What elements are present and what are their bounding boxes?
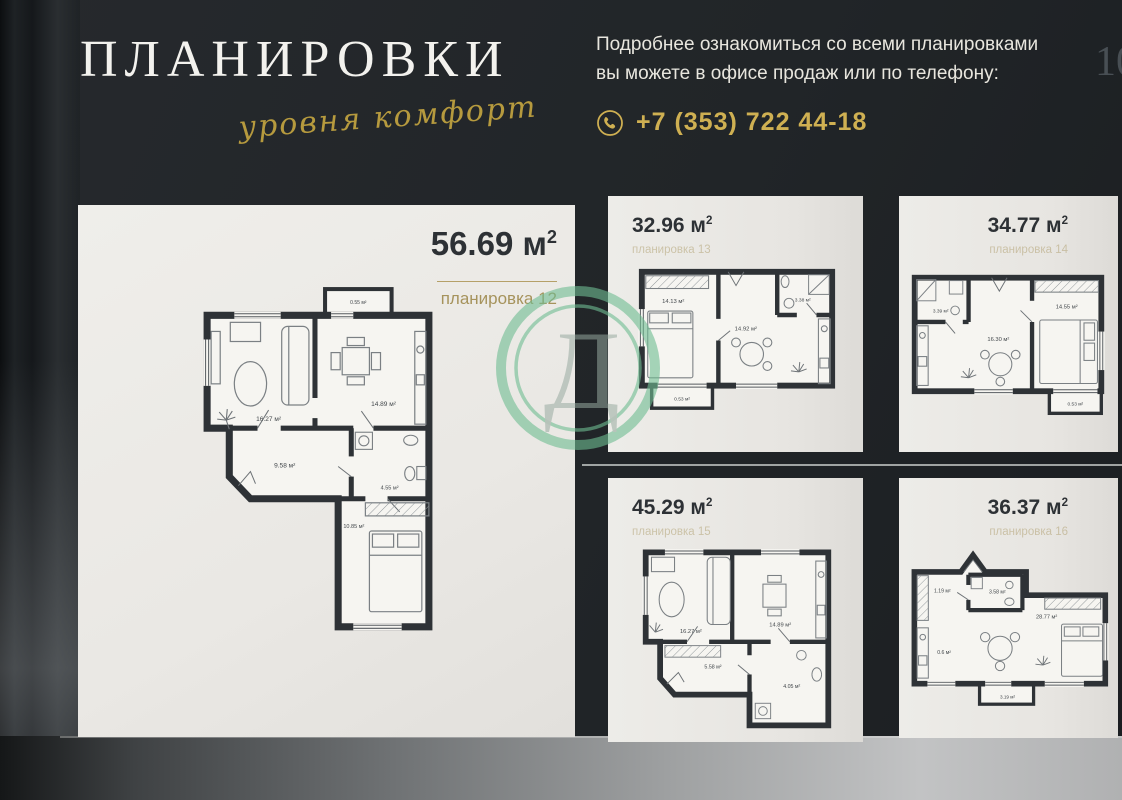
hall-wardrobe	[665, 646, 721, 658]
plan-card-14: 34.77 м2 планировка 14	[899, 196, 1118, 452]
plan-area-title: 32.96 м2	[632, 214, 712, 238]
page-number: 10	[1095, 38, 1122, 86]
room-area-label: 14.89 м²	[769, 622, 791, 628]
room-area-label: 0.6 м²	[937, 650, 951, 656]
room-area-label: 16.30 м²	[987, 337, 1009, 343]
plan-area-title: 45.29 м2	[632, 496, 712, 520]
table-surface	[0, 736, 1122, 800]
room-area-label: 28.77 м²	[1036, 615, 1057, 621]
room-area-label: 4.05 м²	[783, 684, 800, 690]
room-area-label: 14.13 м²	[662, 299, 684, 305]
room-area-label: 3.38 м²	[795, 297, 811, 303]
room-area-label: 3.19 м²	[1000, 695, 1016, 700]
watermark-logo: Д	[494, 284, 662, 452]
room-area-label: 10.85 м²	[343, 524, 364, 530]
phone-number: +7 (353) 722 44-18	[636, 108, 867, 137]
magazine-spine	[0, 0, 80, 800]
room-area-label: 0.53 м²	[1068, 402, 1084, 408]
plan-subtitle: планировка 16	[989, 526, 1068, 538]
phone-icon	[596, 109, 624, 137]
plan-card-15: 45.29 м2 планировка 15	[608, 478, 863, 742]
contact-info-line2: вы можете в офисе продаж или по телефону…	[596, 59, 1038, 88]
room-area-label: 14.92 м²	[735, 327, 757, 333]
room-area-label: 4.55 м²	[381, 486, 399, 492]
contact-info-line1: Подробнее ознакомиться со всеми планиров…	[596, 30, 1038, 59]
watermark-letter: Д	[544, 309, 620, 433]
room-area-label: 3.58 м²	[989, 589, 1006, 595]
plan-area-value: 45.29	[632, 496, 685, 519]
outer-walls	[207, 315, 429, 627]
gold-divider	[437, 281, 557, 282]
page-title: ПЛАНИРОВКИ	[80, 30, 510, 89]
floor-plan-15: 16.27 м² 14.89 м² 5.58 м² 4.05 м²	[636, 538, 838, 735]
floor-plan-13: 14.13 м² 14.92 м² 3.38 м² 0.53 м²	[634, 262, 840, 419]
room-area-label: 16.27 м²	[256, 416, 282, 423]
row-divider-line	[582, 464, 1122, 466]
room-area-label: 0.55 м²	[350, 300, 367, 306]
room-area-label: 1.19 м²	[934, 588, 951, 594]
plan-area-value: 56.69	[431, 225, 514, 262]
plan-area-title: 36.37 м2	[988, 496, 1068, 520]
room-area-label: 3.39 м²	[933, 308, 949, 314]
room-area-label: 14.89 м²	[371, 401, 397, 408]
plan-area-value: 36.37	[988, 496, 1041, 519]
outer-walls	[646, 552, 829, 725]
page-tagline: уровня комфорт	[227, 89, 549, 146]
phone-row: +7 (353) 722 44-18	[596, 108, 867, 137]
plan-area-title: 34.77 м2	[988, 214, 1068, 238]
contact-info: Подробнее ознакомиться со всеми планиров…	[596, 30, 1038, 89]
floor-plan-16: 1.19 м² 3.58 м² 28.77 м² 0.6 м² 3.19 м²	[905, 544, 1110, 707]
room-area-label: 9.58 м²	[274, 463, 296, 470]
floor-plan-14: 3.39 м² 16.30 м² 14.55 м² 0.53 м²	[907, 264, 1109, 428]
outer-walls	[915, 278, 1102, 392]
floor-plan-12: 0.55 м² 16.27 м² 14.89 м² 9.58 м² 4.55 м…	[202, 279, 434, 652]
brochure-page: { "header": { "title": "ПЛАНИРОВКИ", "ta…	[0, 0, 1122, 800]
plan-subtitle: планировка 14	[989, 244, 1068, 256]
plan-card-16: 36.37 м2 планировка 16	[899, 478, 1118, 738]
plan-subtitle: планировка 15	[632, 526, 711, 538]
plan-area-value: 32.96	[632, 214, 685, 237]
room-area-label: 0.53 м²	[674, 396, 690, 402]
plan-area-value: 34.77	[988, 214, 1041, 237]
room-area-label: 5.58 м²	[704, 665, 721, 671]
plan-subtitle: планировка 13	[632, 244, 711, 256]
plan-area-title: 56.69 м2	[431, 225, 557, 263]
room-area-label: 14.55 м²	[1056, 304, 1078, 310]
room-area-label: 16.27 м²	[680, 629, 702, 635]
